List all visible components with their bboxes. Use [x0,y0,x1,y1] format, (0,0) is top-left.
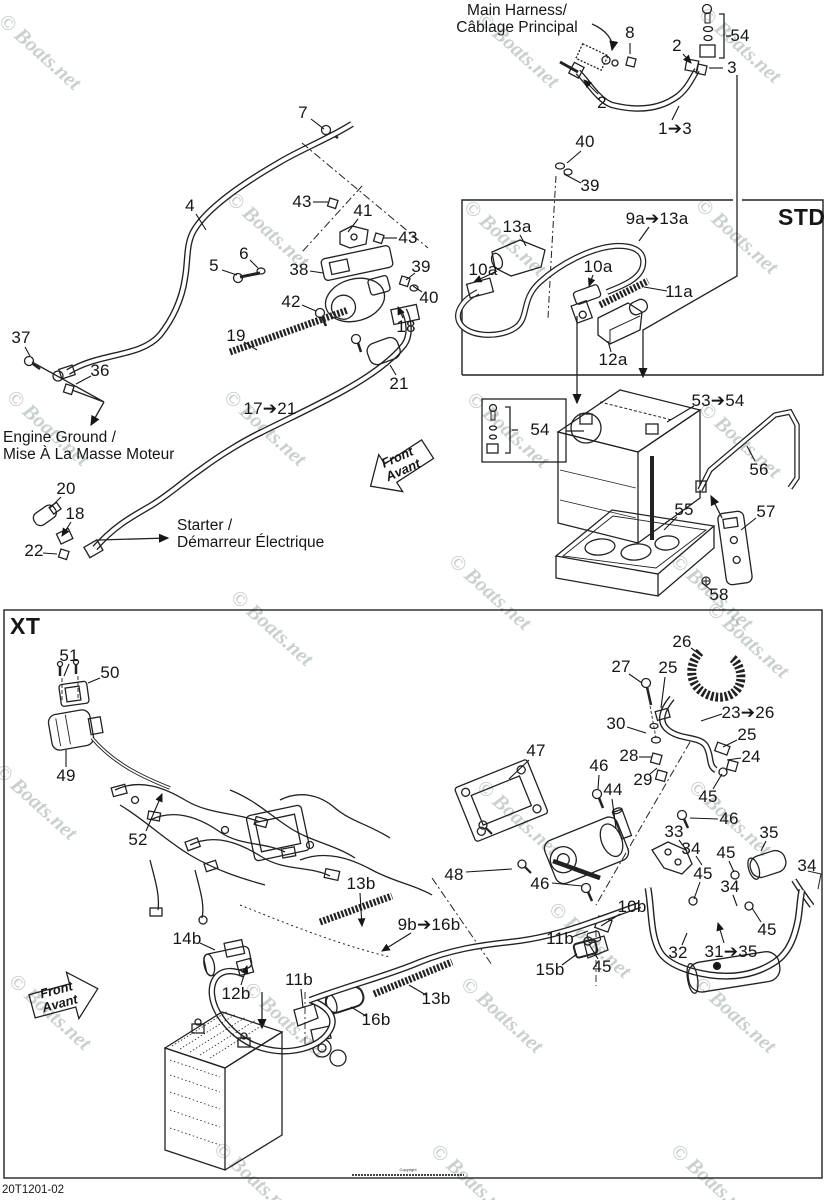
leader-56 [747,446,755,461]
leader-45 [729,861,734,872]
leader-10a [474,271,497,282]
leader-9b➔16b [382,933,411,951]
parts-diagram-page: © Boats.net© Boats.net© Boats.net© Boats… [0,0,826,1200]
leader-1➔3 [672,106,679,120]
leader-30 [627,727,646,733]
static-lines [4,5,823,1179]
leader-53➔54 [667,406,694,422]
leader-11b [572,931,588,937]
leader-57 [741,518,756,530]
leader-7 [311,119,324,129]
leader-lines [25,43,766,1016]
leader-16b [351,1007,366,1016]
leader-14b [200,943,215,950]
leader-10a [589,275,593,286]
leader-36 [76,376,91,384]
leader-34 [696,856,702,865]
leader-21 [390,365,396,375]
leader-29 [650,768,657,774]
leader-45 [713,774,722,789]
leader-24 [727,758,741,760]
leader-32 [682,933,687,945]
leader-13b [409,985,426,995]
xt-section-label: XT [10,613,40,640]
leader-45 [694,882,700,899]
leader-58 [702,583,711,590]
leader-41 [348,219,358,232]
starter-note: Starter / Démarreur Électrique [177,517,324,552]
leader-18 [62,522,71,536]
diagram-artwork [0,0,826,1200]
leader-46 [690,818,718,819]
leader-35 [761,841,766,851]
leader-23➔26 [701,714,722,721]
leader-31➔35 [718,923,724,943]
diagram-part-number: 20T1201-02 [2,1184,64,1196]
leader-5 [222,270,237,275]
leader-34 [733,895,737,906]
leader-11a [644,287,667,291]
leader-11b [301,989,303,1008]
leader-39 [564,174,581,183]
leader-37 [25,347,30,356]
leader-6 [250,260,258,268]
leader-45 [752,908,761,922]
leader-50 [88,678,100,683]
leader-51 [64,664,69,676]
leader-46 [598,775,599,789]
main-harness-note: Main Harness/ Câblage Principal [456,2,578,37]
copyright-fineprint: Copyright [352,1168,464,1176]
leader-48 [466,869,512,872]
leader-27 [629,674,642,683]
leader-25 [723,740,737,747]
fineprint-line [352,1174,464,1176]
leader-40 [567,151,581,163]
engine-ground-note: Engine Ground / Mise À La Masse Moteur [3,429,174,464]
std-section-label: STD [778,204,826,231]
leader-38 [310,271,323,273]
leader-15b [562,954,577,965]
leader-22 [43,553,57,554]
leader-42 [302,305,316,311]
leader-9a➔13a [639,227,649,241]
